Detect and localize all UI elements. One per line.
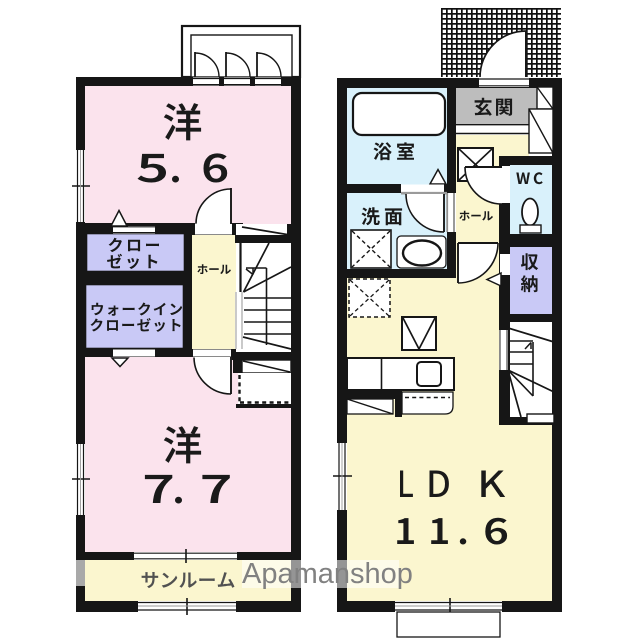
svg-text:Apamanshop: Apamanshop xyxy=(242,558,413,590)
